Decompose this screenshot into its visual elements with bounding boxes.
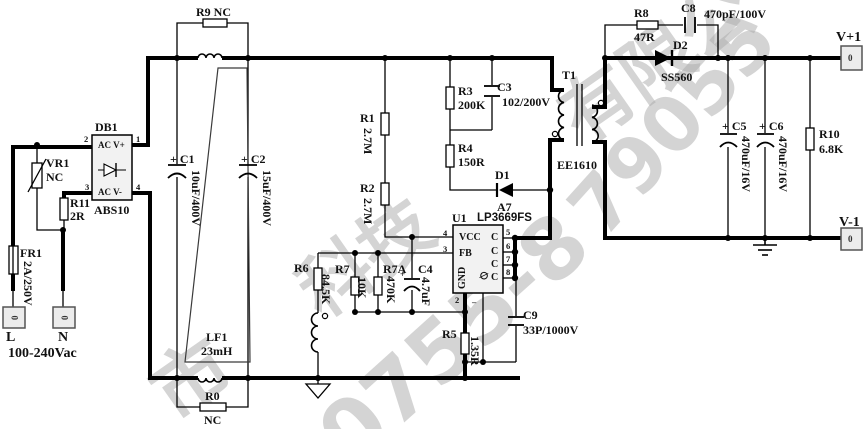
value-label: 470uF/16V (740, 136, 752, 192)
t1-secondary-winding (592, 105, 598, 142)
pin-number: 8 (506, 268, 510, 277)
part-label: SS560 (661, 71, 692, 83)
schematic-canvas: 市 科技 有限公 0755-8 79055 (0, 0, 867, 429)
pin-number: 2 (84, 135, 88, 144)
pin-number: 4 (443, 229, 447, 238)
terminal-L-label: L (6, 331, 15, 345)
value-label: NC (46, 171, 63, 183)
fuse-FR1 (9, 242, 18, 278)
capacitor-C5 (720, 134, 737, 147)
ref-label: R10 (819, 128, 840, 140)
value-label: NC (214, 6, 231, 18)
ic-pin-vcc-label: VCC (459, 233, 481, 243)
pin-number: 6 (506, 242, 510, 251)
value-label: 2R (70, 210, 85, 222)
part-label: LP3669FS (477, 213, 532, 225)
resistor-R4 (446, 145, 454, 167)
ref-label: R2 (360, 182, 375, 194)
value-label: 84.5K (320, 274, 332, 304)
resistor-R8 (637, 21, 658, 29)
ref-label: R11 (70, 197, 90, 209)
pin-number: – (472, 298, 476, 307)
ref-label: R4 (458, 142, 473, 154)
circuit-wires (0, 0, 867, 429)
pin-number: 3 (85, 183, 89, 192)
value-label: 4.7uF (420, 277, 432, 306)
value-label: NC (204, 414, 221, 426)
value-label: 23mH (201, 345, 232, 357)
value-label: 2A/250V (22, 261, 34, 306)
terminal-mark: 0 (848, 54, 853, 63)
terminal-N-label: N (58, 331, 68, 345)
capacitor-C8 (685, 17, 695, 33)
ref-label: LF1 (206, 331, 227, 343)
ic-pin-fb-label: FB (459, 249, 472, 259)
value-label: 15uF/400V (261, 170, 273, 226)
varistor-VR1 (28, 159, 46, 192)
resistor-R1 (381, 113, 389, 135)
value-label: 470K (385, 276, 397, 303)
t1-primary-winding (558, 90, 564, 140)
value-label: 33P/1000V (523, 324, 578, 336)
polarity-plus: + (759, 120, 766, 132)
capacitor-C4 (404, 279, 420, 291)
resistor-R3 (446, 87, 454, 109)
value-label: 6.8K (819, 143, 843, 155)
resistor-R10 (806, 128, 814, 150)
polarity-plus: + (241, 153, 248, 165)
bridge-acminus-label: AC V- (98, 188, 122, 197)
ic-pin-gnd-label: GND (458, 267, 468, 289)
ref-label: C8 (681, 2, 696, 14)
lf1-bottom-winding (198, 378, 222, 382)
resistor-R0 (200, 403, 226, 411)
ref-label: U1 (452, 212, 467, 224)
ref-label: C3 (497, 81, 512, 93)
value-label: 1.35R (469, 336, 481, 366)
pin-number: 7 (506, 255, 510, 264)
ref-label: D1 (495, 169, 510, 181)
value-label: 2.7M (362, 128, 374, 154)
value-label: 10K (356, 277, 368, 298)
ic-pin-c-label: C (491, 260, 498, 270)
t1-secondary-phase-dot (598, 100, 603, 105)
capacitor-C6 (757, 134, 774, 147)
ref-label: DB1 (95, 121, 118, 133)
ref-label: C6 (769, 120, 784, 132)
terminal-Vn1-label: V-1 (839, 216, 860, 230)
ref-label: T1 (562, 69, 576, 81)
value-label: 470pF/100V (704, 8, 766, 20)
ic-pin-c-label: C (491, 247, 498, 257)
terminal-mark: 0 (11, 316, 20, 321)
resistor-R2 (381, 183, 389, 205)
pin-number: 5 (506, 228, 510, 237)
value-label: 102/200V (502, 96, 550, 108)
pin-number: 2 (455, 296, 459, 305)
t1-aux-phase-dot (322, 313, 327, 318)
resistor-R7A (374, 277, 382, 295)
value-label: 470uF/16V (777, 136, 789, 192)
ref-label: R3 (458, 85, 473, 97)
t1-aux-winding (312, 313, 318, 352)
resistor-bodies (60, 19, 814, 411)
ref-label: R1 (360, 112, 375, 124)
lf1-top-winding (198, 54, 222, 58)
diode-D1 (497, 183, 513, 197)
ic-pin-c-label: C (491, 233, 498, 243)
ref-label: R0 (205, 390, 220, 402)
pin-number: 1 (136, 135, 140, 144)
ref-label: C9 (523, 309, 538, 321)
ref-label: VR1 (46, 157, 69, 169)
component-R9: R9 NC (196, 6, 231, 18)
capacitor-C9 (508, 317, 524, 325)
pin-number: 4 (136, 183, 140, 192)
value-label: 150R (458, 156, 485, 168)
resistor-R9 (203, 19, 227, 27)
ref-label: R9 (196, 6, 211, 18)
ref-label: R5 (442, 328, 457, 340)
polarity-plus: + (722, 120, 729, 132)
bridge-acplus-label: AC V+ (98, 141, 125, 150)
diode-D2 (655, 50, 672, 66)
power-rails (13, 58, 841, 378)
pin-number: 3 (443, 245, 447, 254)
ref-label: C5 (732, 120, 747, 132)
value-label: 47R (634, 31, 655, 43)
ref-label: D2 (673, 39, 688, 51)
ref-label: R7 (335, 263, 350, 275)
ref-label: R8 (634, 7, 649, 19)
part-label: ABS10 (94, 204, 129, 216)
resistor-R11 (60, 198, 68, 220)
value-label: 10uF/400V (190, 170, 202, 226)
ref-label: R6 (294, 262, 309, 274)
terminal-mark: 0 (848, 235, 853, 244)
ref-label: C4 (418, 263, 433, 275)
polarity-plus: + (400, 270, 405, 279)
ref-label: C2 (251, 153, 266, 165)
t1-primary-phase-dot (552, 131, 557, 136)
ref-label: FR1 (20, 247, 42, 259)
value-label: 200K (458, 99, 485, 111)
terminal-mark: 0 (61, 316, 70, 321)
ref-label: C1 (180, 153, 195, 165)
capacitor-C1 (168, 165, 186, 178)
terminal-Vp1-label: V+1 (836, 31, 861, 45)
ic-pin-c-label: C (491, 273, 498, 283)
part-label: EE1610 (557, 159, 597, 171)
input-voltage-range: 100-240Vac (8, 347, 77, 361)
value-label: 2.7M (362, 198, 374, 224)
polarity-plus: + (170, 153, 177, 165)
